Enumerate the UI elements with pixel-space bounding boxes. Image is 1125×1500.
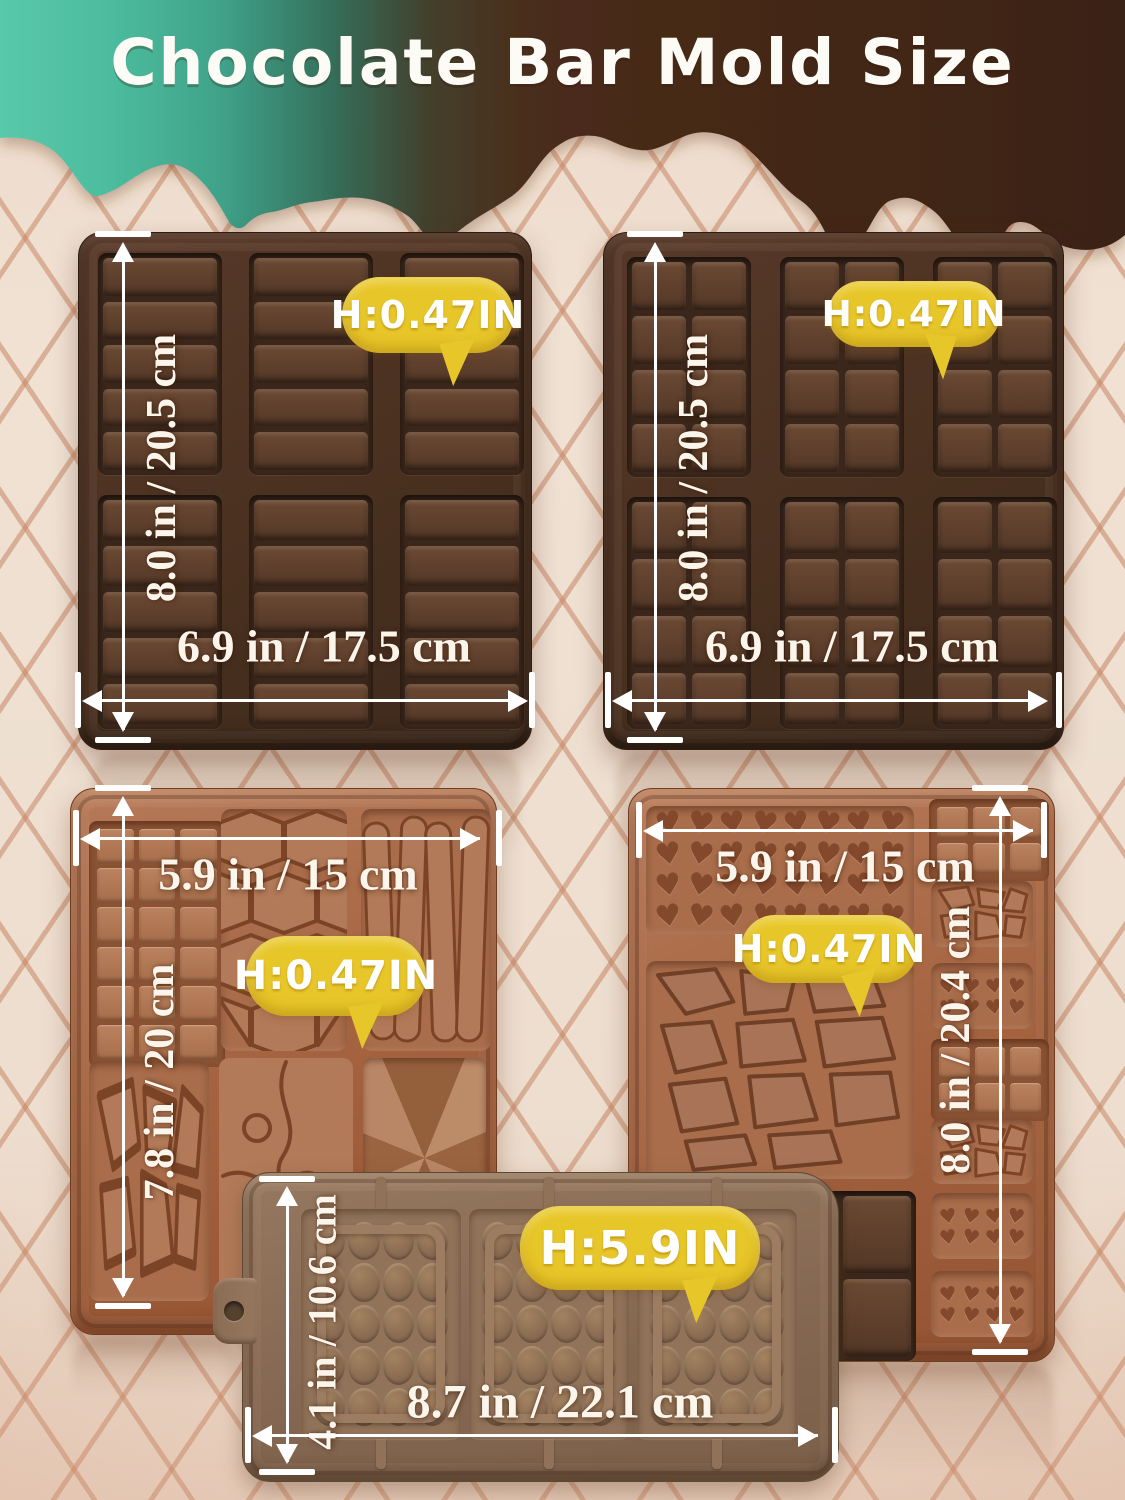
badge-tail-icon	[439, 339, 481, 388]
arrowhead-icon	[112, 712, 134, 732]
dimension-tick	[627, 737, 683, 743]
product-infographic: Chocolate Bar Mold Size ♥♥♥♥♥♥♥♥♥♥♥♥♥♥♥♥…	[0, 0, 1125, 1500]
arrowhead-icon	[80, 828, 100, 850]
arrowhead-icon	[276, 1444, 298, 1464]
dimension-tick	[259, 1469, 315, 1475]
arrowhead-icon	[643, 820, 663, 842]
dimension-tick	[75, 672, 81, 728]
mold-reflection	[72, 1338, 237, 1408]
dimension-tick	[636, 802, 642, 858]
badge-tail-icon	[348, 1002, 390, 1051]
arrowhead-icon	[82, 690, 102, 712]
height-badge: H:0.47IN	[828, 281, 1000, 347]
sprue-channel	[712, 1437, 722, 1469]
break-bar-cavity	[400, 495, 524, 729]
dimension-tick	[95, 737, 151, 743]
arrowhead-icon	[1013, 820, 1033, 842]
dimension-tick	[95, 231, 151, 237]
dimension-line	[661, 829, 1033, 832]
sprue-channel	[376, 1177, 386, 1211]
dimension-tick	[245, 1407, 251, 1463]
width-dimension-label: 8.7 in / 22.1 cm	[407, 1375, 714, 1430]
dimension-line	[100, 699, 510, 702]
hearts-pattern-cavity: ♥♥♥♥♥♥♥♥	[931, 1271, 1033, 1337]
arrowhead-icon	[460, 828, 480, 850]
dimension-tick	[95, 1303, 151, 1309]
arrowhead-icon	[112, 1278, 134, 1298]
sprue-channel	[544, 1437, 554, 1469]
height-badge-label: H:0.47IN	[234, 953, 439, 999]
dimension-line	[654, 246, 657, 730]
dimension-tick	[605, 672, 611, 728]
width-dimension-label: 6.9 in / 17.5 cm	[705, 620, 999, 673]
dimension-tick	[627, 231, 683, 237]
square-grid-cavity	[780, 497, 904, 729]
height-dimension-label: 8.0 in / 20.5 cm	[670, 334, 718, 602]
arrowhead-icon	[989, 1324, 1011, 1344]
dimension-line	[286, 1190, 289, 1462]
height-badge-label: H:0.47IN	[822, 294, 1007, 335]
dimension-line	[270, 1434, 818, 1437]
width-dimension-label: 5.9 in / 15 cm	[715, 840, 974, 893]
height-badge: H:0.47IN	[342, 277, 514, 353]
badge-tail-icon	[921, 334, 957, 381]
height-badge: H:5.9IN	[520, 1206, 760, 1290]
arrowhead-icon	[252, 1425, 272, 1447]
dimension-line	[98, 837, 480, 840]
dimension-line	[999, 800, 1002, 1342]
dimension-tick	[972, 785, 1028, 791]
height-badge-label: H:5.9IN	[540, 1221, 741, 1275]
hanging-hole-icon	[224, 1301, 244, 1321]
arrowhead-icon	[644, 712, 666, 732]
dimension-tick	[496, 810, 502, 866]
height-dimension-label: 4.1 in / 10.6 cm	[299, 1194, 346, 1450]
dimension-line	[630, 699, 1028, 702]
height-badge-label: H:0.47IN	[732, 927, 927, 971]
hearts-pattern-cavity: ♥♥♥♥♥♥♥♥	[931, 1193, 1033, 1259]
height-dimension-label: 7.8 in / 20 cm	[136, 964, 184, 1201]
height-badge-label: H:0.47IN	[331, 293, 526, 337]
dimension-tick	[972, 1349, 1028, 1355]
page-title: Chocolate Bar Mold Size	[0, 26, 1125, 99]
height-badge: H:0.47IN	[246, 936, 426, 1016]
dimension-tick	[832, 1407, 838, 1463]
dimension-tick	[73, 810, 79, 866]
height-badge: H:0.47IN	[741, 915, 917, 983]
width-dimension-label: 5.9 in / 15 cm	[158, 848, 417, 901]
dimension-tick	[1056, 672, 1062, 728]
arrowhead-icon	[612, 690, 632, 712]
dimension-line	[122, 246, 125, 730]
height-dimension-label: 8.0 in / 20.4 cm	[932, 906, 980, 1174]
arrowhead-icon	[508, 690, 528, 712]
break-bar-cavity	[249, 495, 373, 729]
dimension-tick	[1041, 802, 1047, 858]
dimension-tick	[529, 672, 535, 728]
arrowhead-icon	[1028, 690, 1048, 712]
dimension-tick	[259, 1176, 315, 1182]
width-dimension-label: 6.9 in / 17.5 cm	[177, 620, 471, 673]
dimension-line	[122, 800, 125, 1296]
badge-tail-icon	[682, 1276, 724, 1325]
hanging-tab	[213, 1278, 257, 1344]
dimension-tick	[95, 785, 151, 791]
height-dimension-label: 8.0 in / 20.5 cm	[138, 334, 186, 602]
arrowhead-icon	[798, 1425, 818, 1447]
sprue-channel	[376, 1437, 386, 1469]
